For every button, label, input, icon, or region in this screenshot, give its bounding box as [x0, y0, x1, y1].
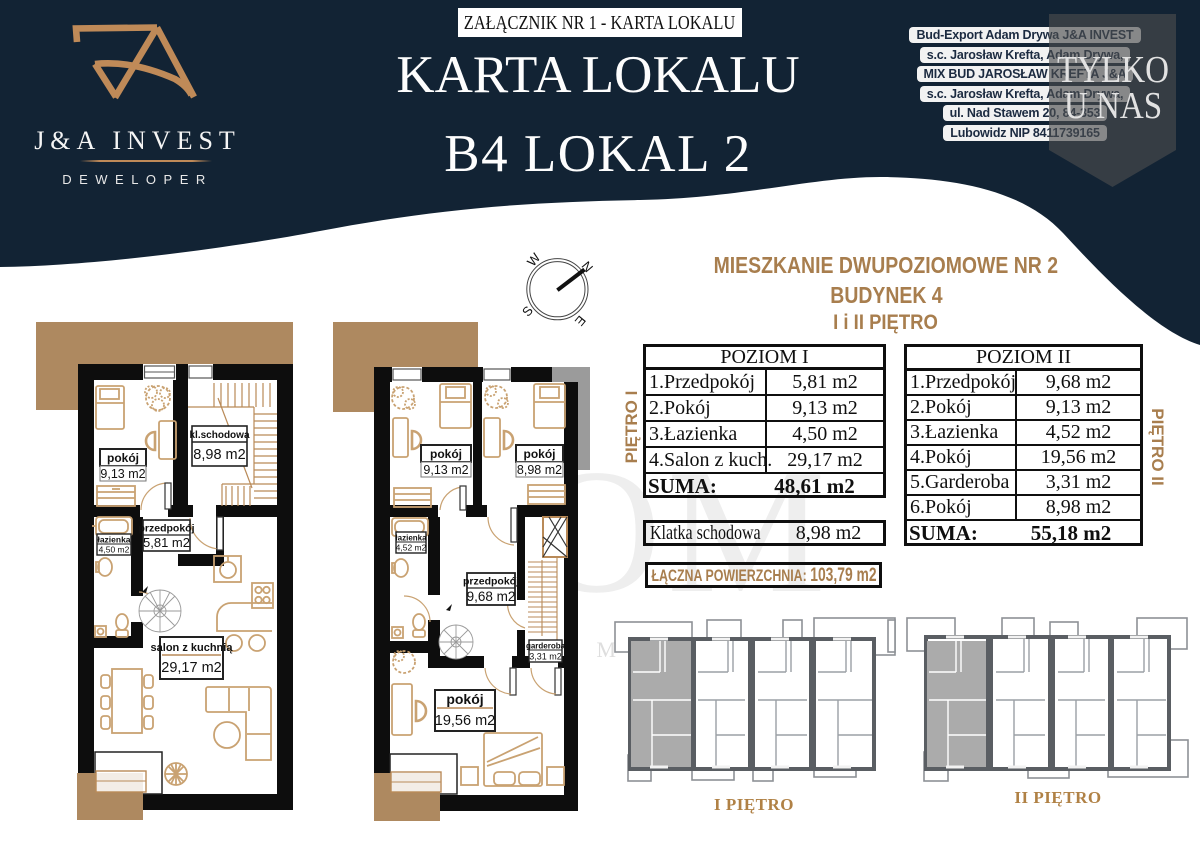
svg-text:przedpokój: przedpokój — [138, 523, 194, 535]
svg-text:19,56 m2: 19,56 m2 — [435, 713, 495, 729]
svg-text:9,13 m2: 9,13 m2 — [423, 463, 468, 477]
svg-text:8,98 m2: 8,98 m2 — [193, 447, 245, 463]
svg-text:I PIĘTRO: I PIĘTRO — [714, 795, 794, 814]
svg-text:4,50 m2: 4,50 m2 — [99, 545, 130, 555]
svg-text:9,68 m2: 9,68 m2 — [467, 589, 516, 604]
svg-text:salon z kuchnią: salon z kuchnią — [151, 642, 234, 654]
svg-text:8,98 m2: 8,98 m2 — [517, 463, 562, 477]
svg-text:kl.schodowa: kl.schodowa — [189, 430, 249, 441]
svg-text:4,52 m2: 4,52 m2 — [396, 543, 427, 553]
svg-text:pokój: pokój — [446, 691, 483, 707]
svg-text:pokój: pokój — [107, 451, 139, 465]
svg-text:II PIĘTRO: II PIĘTRO — [1014, 788, 1101, 807]
svg-text:9,13 m2: 9,13 m2 — [100, 467, 145, 481]
svg-text:5,81 m2: 5,81 m2 — [143, 535, 190, 550]
svg-text:łazienka: łazienka — [97, 535, 130, 545]
svg-text:przedpokój: przedpokój — [463, 576, 519, 588]
svg-text:3,31 m2: 3,31 m2 — [529, 652, 562, 662]
svg-text:pokój: pokój — [524, 447, 556, 461]
svg-text:pokój: pokój — [430, 447, 462, 461]
svg-text:29,17 m2: 29,17 m2 — [161, 660, 221, 676]
svg-text:łazienka: łazienka — [395, 534, 427, 543]
svg-text:garderoba: garderoba — [526, 642, 566, 651]
